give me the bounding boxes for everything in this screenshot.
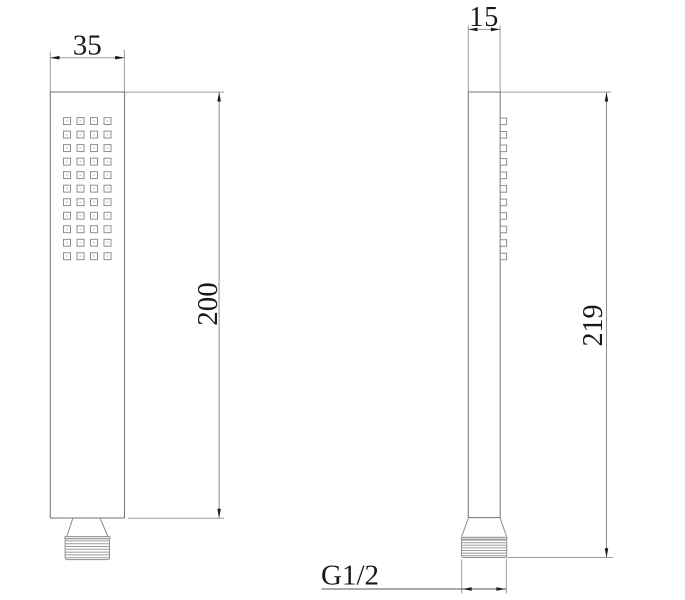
svg-text:200: 200 [192,282,224,326]
svg-text:G1/2: G1/2 [321,560,379,592]
svg-text:219: 219 [578,305,609,347]
svg-text:35: 35 [73,29,102,61]
svg-text:15: 15 [469,2,499,33]
